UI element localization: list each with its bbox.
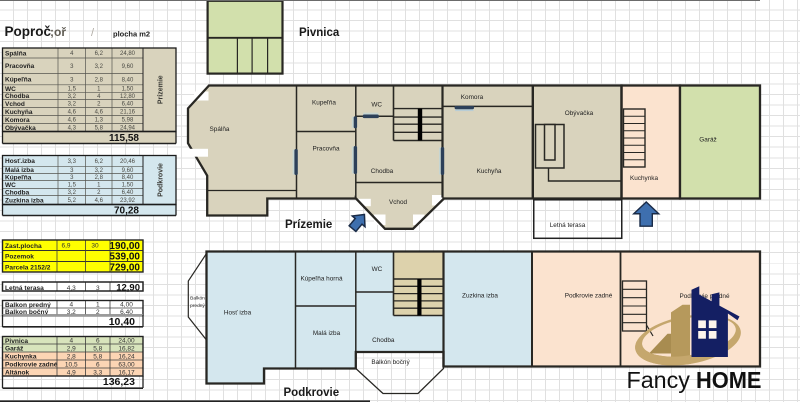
svg-text:Hosť izba: Hosť izba — [224, 310, 252, 317]
svg-text:Malá izba: Malá izba — [313, 330, 341, 337]
svg-text:Spálňa: Spálňa — [5, 50, 27, 57]
svg-text:WC: WC — [371, 101, 382, 108]
svg-text:Obývačka: Obývačka — [5, 125, 36, 132]
svg-text:6,2: 6,2 — [95, 51, 104, 57]
svg-text:6,9: 6,9 — [61, 243, 70, 250]
svg-text:Letná terasa: Letná terasa — [550, 222, 586, 229]
svg-text:1,5: 1,5 — [68, 87, 77, 93]
svg-text:Vchod: Vchod — [389, 199, 408, 206]
svg-text:20,46: 20,46 — [120, 159, 136, 165]
svg-text:Balkón bočný: Balkón bočný — [371, 359, 410, 366]
svg-text:Komora: Komora — [5, 117, 30, 124]
svg-text:Vchod: Vchod — [5, 101, 25, 108]
svg-text:Pracovňa: Pracovňa — [313, 145, 340, 152]
svg-text:2,9: 2,9 — [67, 345, 76, 352]
svg-text:3,2: 3,2 — [95, 64, 104, 70]
svg-text:Prízemie: Prízemie — [285, 219, 332, 231]
svg-text:115,58: 115,58 — [109, 133, 139, 144]
svg-text:5,8: 5,8 — [93, 353, 102, 360]
svg-text:1,50: 1,50 — [122, 183, 134, 189]
svg-text:10,5: 10,5 — [65, 361, 78, 368]
svg-text:Podkrovie zadné: Podkrovie zadné — [5, 362, 58, 369]
svg-text:2,8: 2,8 — [95, 77, 104, 83]
svg-text:24,94: 24,94 — [120, 126, 136, 132]
svg-text:Zuzkina izba: Zuzkina izba — [5, 197, 44, 204]
svg-text:plocha m2: plocha m2 — [113, 29, 150, 38]
svg-text:1,5: 1,5 — [68, 183, 77, 189]
svg-text:predný: predný — [190, 303, 205, 309]
svg-text:5,2: 5,2 — [68, 198, 77, 204]
svg-text:5,8: 5,8 — [95, 126, 104, 132]
svg-text:4,3: 4,3 — [68, 126, 77, 132]
svg-text:Kuchynka: Kuchynka — [5, 354, 37, 361]
svg-text:Podkrovie: Podkrovie — [284, 387, 340, 399]
svg-text:HOME: HOME — [696, 367, 762, 393]
svg-text:Hosť.izba: Hosť.izba — [5, 158, 35, 165]
svg-text:WC: WC — [5, 86, 16, 93]
svg-text:Fancy: Fancy — [627, 367, 691, 393]
svg-text:Zuzkina izba: Zuzkina izba — [462, 293, 498, 300]
svg-text:1,3: 1,3 — [95, 118, 104, 124]
svg-text:Kuchyňa: Kuchyňa — [477, 168, 502, 175]
svg-text:Kupeľňa: Kupeľňa — [312, 99, 336, 106]
svg-text:Podkrovie zadné: Podkrovie zadné — [565, 293, 613, 300]
svg-text:5,98: 5,98 — [122, 118, 134, 124]
svg-text:Kúpeľňa: Kúpeľňa — [5, 76, 32, 83]
svg-text:4,6: 4,6 — [95, 198, 104, 204]
svg-text:Chodba: Chodba — [371, 168, 394, 175]
svg-text:Pozemok: Pozemok — [5, 254, 34, 261]
svg-text:Parcela 2152/2: Parcela 2152/2 — [5, 264, 51, 271]
svg-text:3,2: 3,2 — [68, 102, 77, 108]
svg-text:/: / — [91, 27, 95, 39]
svg-text:Pracovňa: Pracovňa — [5, 63, 35, 70]
svg-text:Spálňa: Spálňa — [210, 126, 230, 133]
svg-text:Komora: Komora — [461, 94, 484, 101]
svg-text:Balkón: Balkón — [190, 296, 205, 302]
svg-text:16,82: 16,82 — [118, 345, 135, 352]
svg-text:9,60: 9,60 — [122, 64, 134, 70]
svg-text:Zast.plocha: Zast.plocha — [5, 243, 42, 250]
svg-text:136,23: 136,23 — [103, 376, 135, 388]
svg-text:6: 6 — [96, 361, 100, 368]
svg-text:WC: WC — [5, 182, 16, 189]
svg-text:8,40: 8,40 — [122, 77, 134, 83]
svg-text:4,6: 4,6 — [68, 110, 77, 116]
svg-text:WC: WC — [372, 266, 383, 273]
svg-text:63,00: 63,00 — [118, 361, 135, 368]
svg-text:16,24: 16,24 — [118, 353, 135, 360]
svg-text:Prízemie: Prízemie — [158, 75, 165, 104]
svg-text:12,90: 12,90 — [116, 283, 140, 294]
svg-text:23,92: 23,92 — [120, 198, 136, 204]
svg-text:Chodba: Chodba — [372, 337, 395, 344]
svg-text:21,16: 21,16 — [120, 110, 136, 116]
svg-text:2,8: 2,8 — [67, 353, 76, 360]
svg-text:Podkrovie: Podkrovie — [158, 163, 165, 197]
svg-text:Garáž: Garáž — [699, 136, 716, 143]
svg-text:Kúpeľňa horná: Kúpeľňa horná — [300, 276, 342, 283]
svg-text:4,6: 4,6 — [95, 110, 104, 116]
svg-text:24,80: 24,80 — [120, 51, 136, 57]
svg-text:Obývačka: Obývačka — [565, 110, 594, 117]
svg-text:4,6: 4,6 — [68, 118, 77, 124]
svg-text:1,50: 1,50 — [122, 87, 134, 93]
svg-text:6,40: 6,40 — [122, 102, 134, 108]
svg-text:;oř: ;oř — [50, 25, 66, 39]
svg-text:3,3: 3,3 — [68, 159, 77, 165]
svg-text:5,8: 5,8 — [93, 345, 102, 352]
svg-text:Garáž: Garáž — [5, 346, 24, 353]
svg-text:Pivnica: Pivnica — [299, 27, 340, 39]
svg-text:30: 30 — [91, 243, 99, 250]
svg-text:6,2: 6,2 — [95, 159, 104, 165]
svg-text:Kuchynka: Kuchynka — [630, 175, 659, 182]
svg-text:Poproč: Poproč — [5, 24, 52, 39]
svg-text:Kuchyňa: Kuchyňa — [5, 109, 33, 116]
